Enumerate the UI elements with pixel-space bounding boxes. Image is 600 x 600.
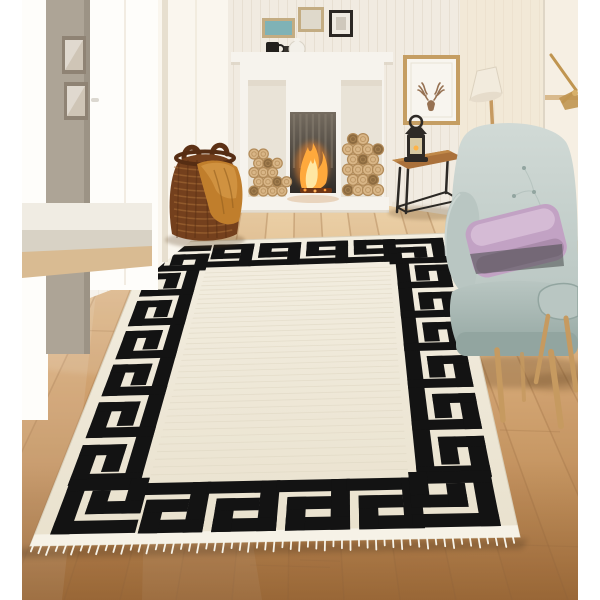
- living-room-product-photo: Living room product photo: cream rug wit…: [0, 0, 600, 600]
- wall-frame-small: [298, 7, 324, 32]
- deer-art: [405, 57, 458, 123]
- pillar-frame-top: [62, 36, 86, 74]
- mantel-shelf: [231, 52, 393, 62]
- stool-seat: [538, 284, 578, 320]
- firebox: [290, 112, 336, 193]
- wall-frame-teal: [262, 18, 295, 38]
- scene: [0, 0, 600, 600]
- storage-basket: [165, 145, 245, 248]
- armchair-skirt: [456, 332, 578, 356]
- window-sill: [22, 203, 152, 278]
- scene-canvas: Living room product photo: cream rug wit…: [0, 0, 600, 600]
- pillar-frame-bottom: [64, 82, 88, 120]
- wall-frame-black: [329, 10, 353, 37]
- door-handle: [91, 98, 99, 102]
